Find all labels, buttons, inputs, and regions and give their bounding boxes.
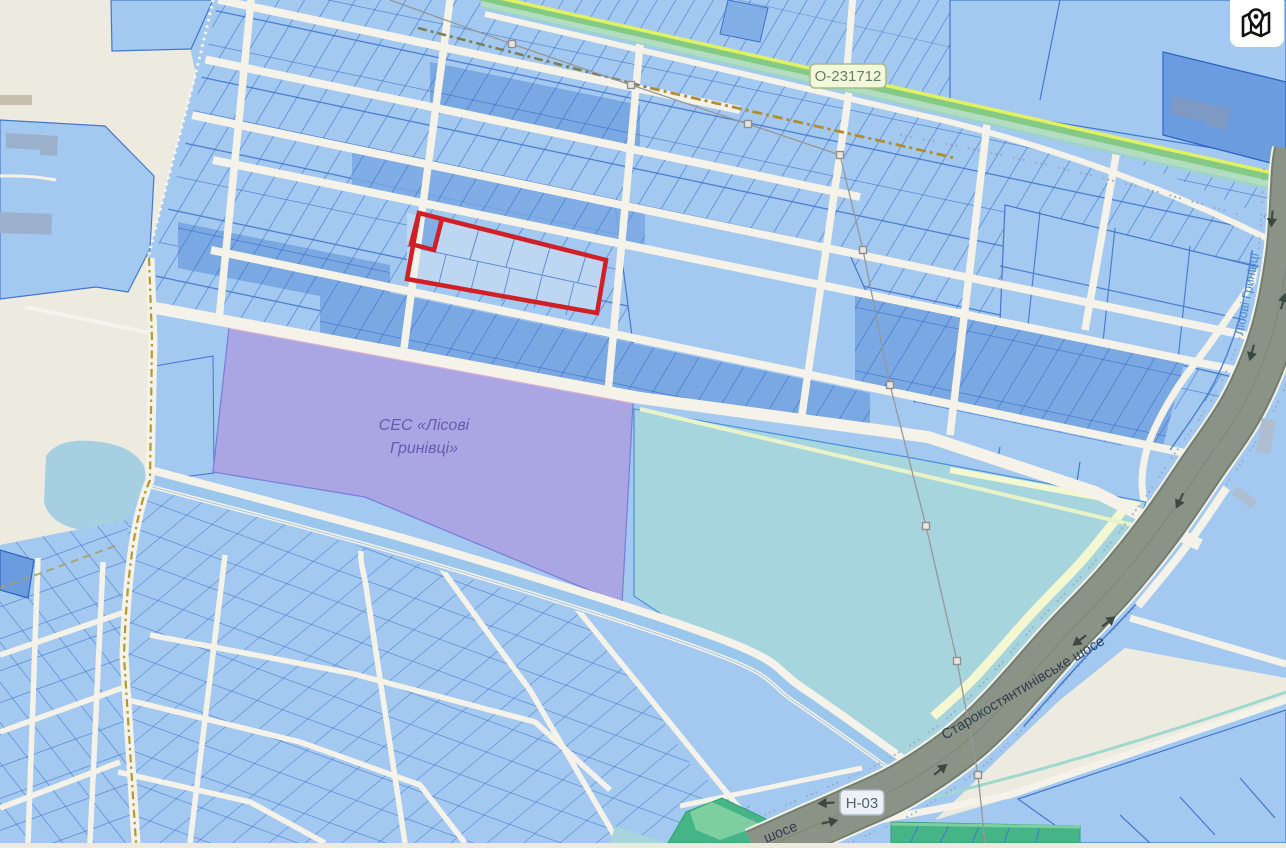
svg-text:Гринівці»: Гринівці» xyxy=(390,440,458,457)
svg-text:СЕС «Лісові: СЕС «Лісові xyxy=(379,417,470,434)
svg-text:О-231712: О-231712 xyxy=(815,68,882,85)
svg-text:Н-03: Н-03 xyxy=(846,795,879,812)
